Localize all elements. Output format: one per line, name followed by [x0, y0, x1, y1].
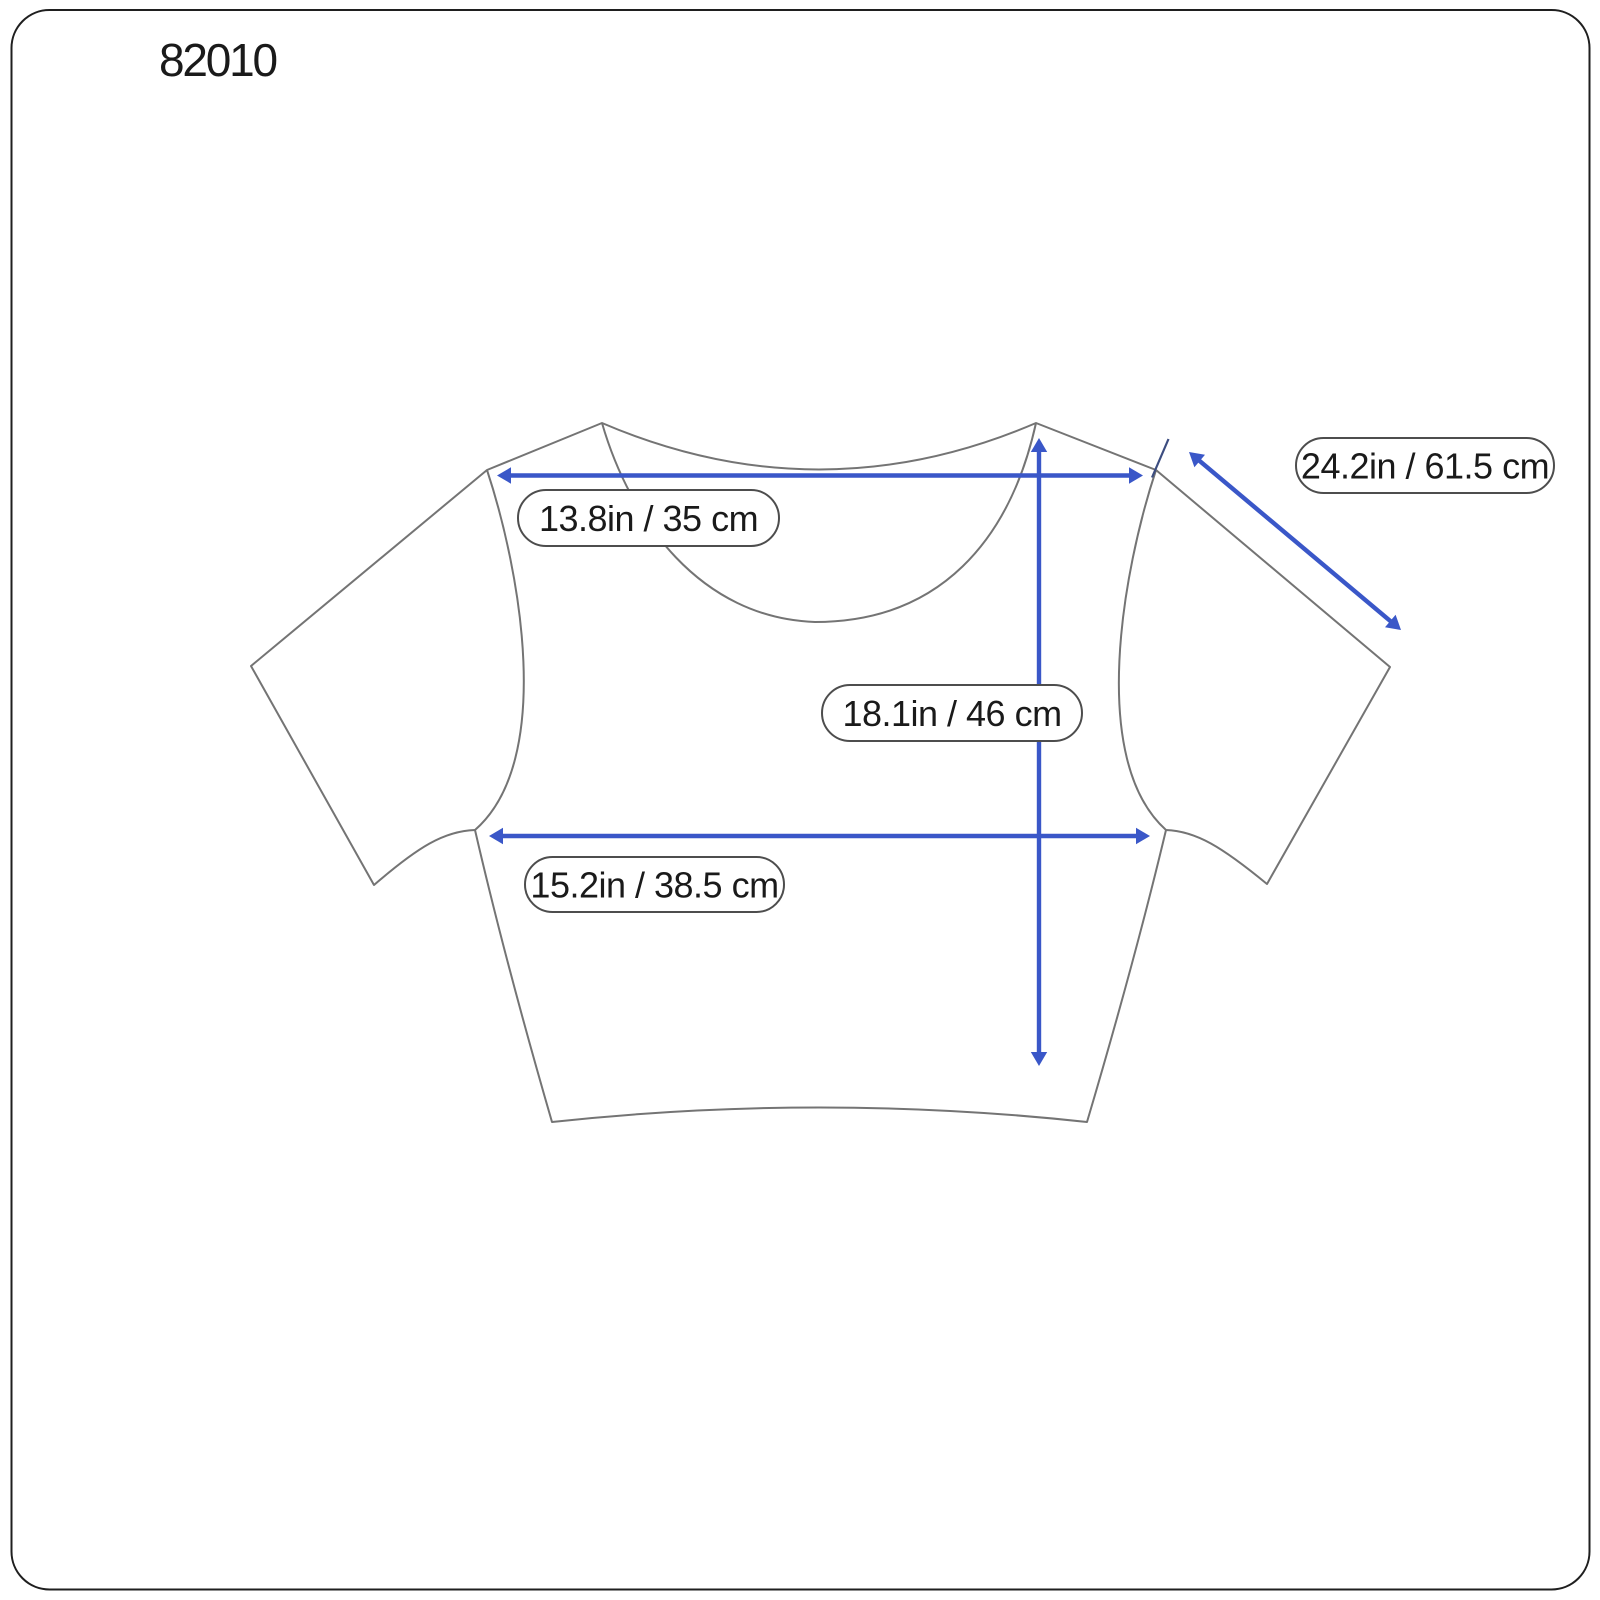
svg-text:15.2in / 38.5 cm: 15.2in / 38.5 cm	[530, 865, 778, 906]
svg-text:18.1in / 46 cm: 18.1in / 46 cm	[842, 693, 1061, 734]
svg-text:24.2in / 61.5 cm: 24.2in / 61.5 cm	[1301, 446, 1549, 487]
svg-text:82010: 82010	[159, 34, 277, 86]
svg-text:13.8in / 35 cm: 13.8in / 35 cm	[539, 498, 758, 539]
